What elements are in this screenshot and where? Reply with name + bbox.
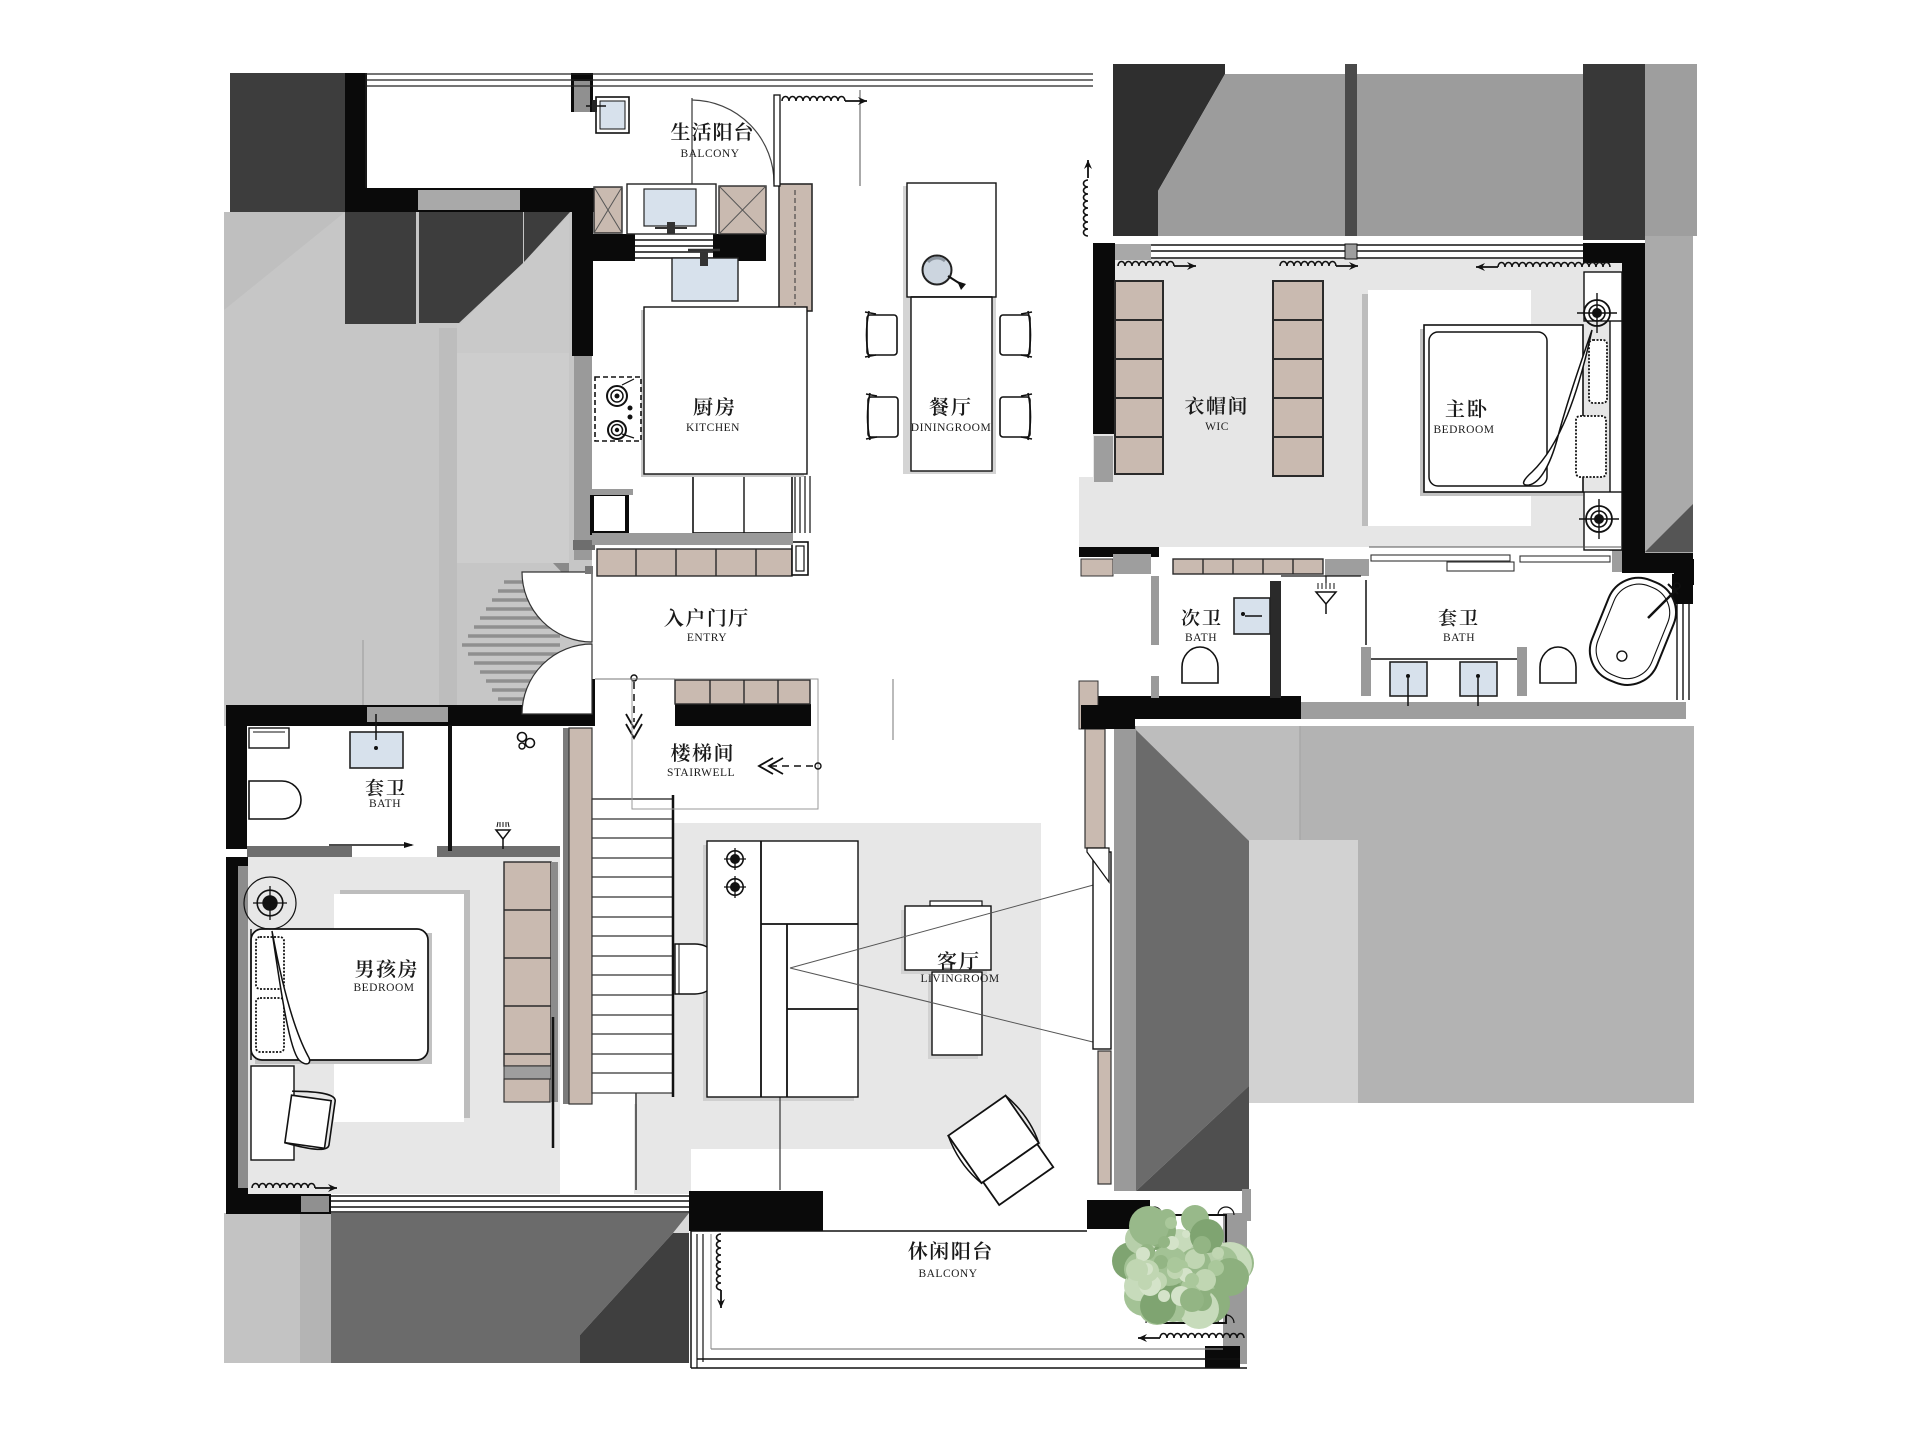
svg-text:STAIRWELL: STAIRWELL	[667, 767, 735, 779]
svg-text:DININGROOM: DININGROOM	[911, 422, 991, 434]
svg-text:BEDROOM: BEDROOM	[1433, 424, 1494, 436]
svg-text:BATH: BATH	[1185, 632, 1217, 644]
svg-text:BALCONY: BALCONY	[680, 148, 739, 160]
svg-text:KITCHEN: KITCHEN	[686, 422, 740, 434]
svg-text:BATH: BATH	[1443, 632, 1475, 644]
svg-text:BALCONY: BALCONY	[918, 1268, 977, 1280]
svg-text:LIVINGROOM: LIVINGROOM	[920, 973, 999, 985]
svg-text:ENTRY: ENTRY	[687, 632, 727, 644]
svg-text:WIC: WIC	[1205, 421, 1229, 433]
svg-text:BATH: BATH	[369, 798, 401, 810]
svg-text:BEDROOM: BEDROOM	[353, 982, 414, 994]
